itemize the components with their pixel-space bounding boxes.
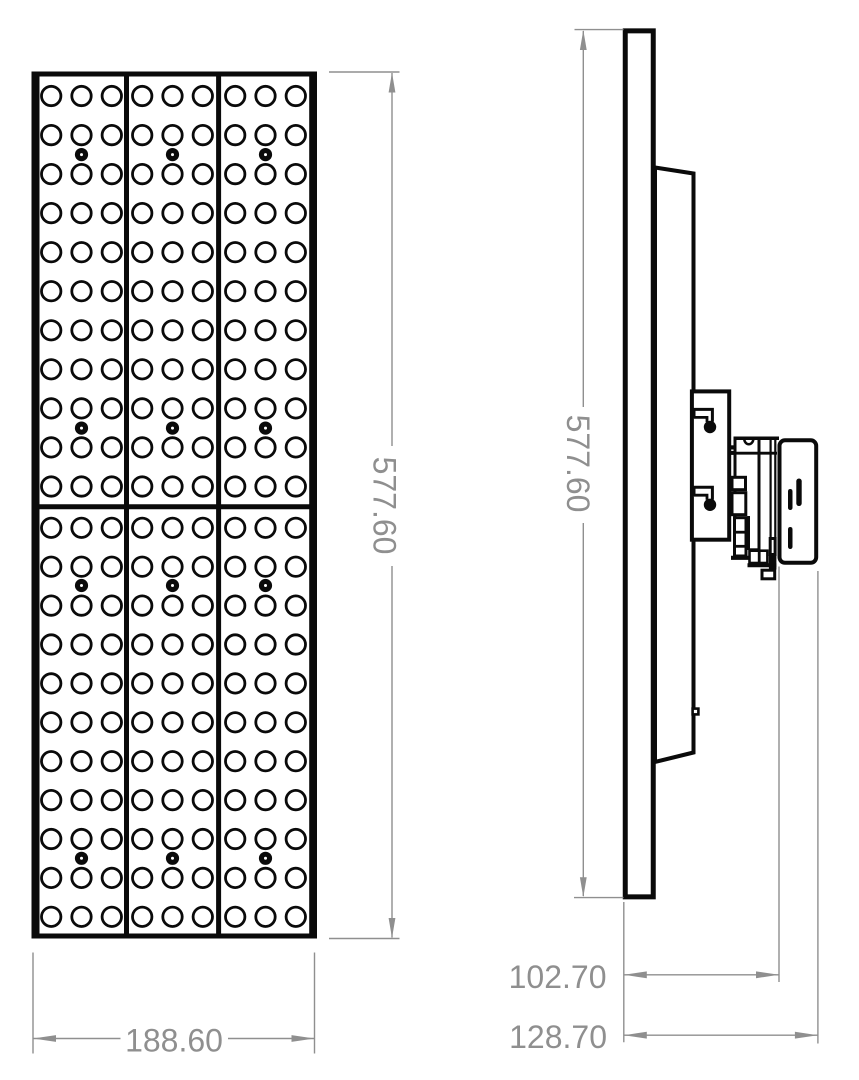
svg-text:577.60: 577.60: [560, 415, 596, 513]
svg-text:577.60: 577.60: [367, 457, 403, 555]
svg-text:102.70: 102.70: [509, 959, 607, 995]
svg-text:188.60: 188.60: [125, 1023, 223, 1059]
svg-text:128.70: 128.70: [509, 1019, 607, 1055]
